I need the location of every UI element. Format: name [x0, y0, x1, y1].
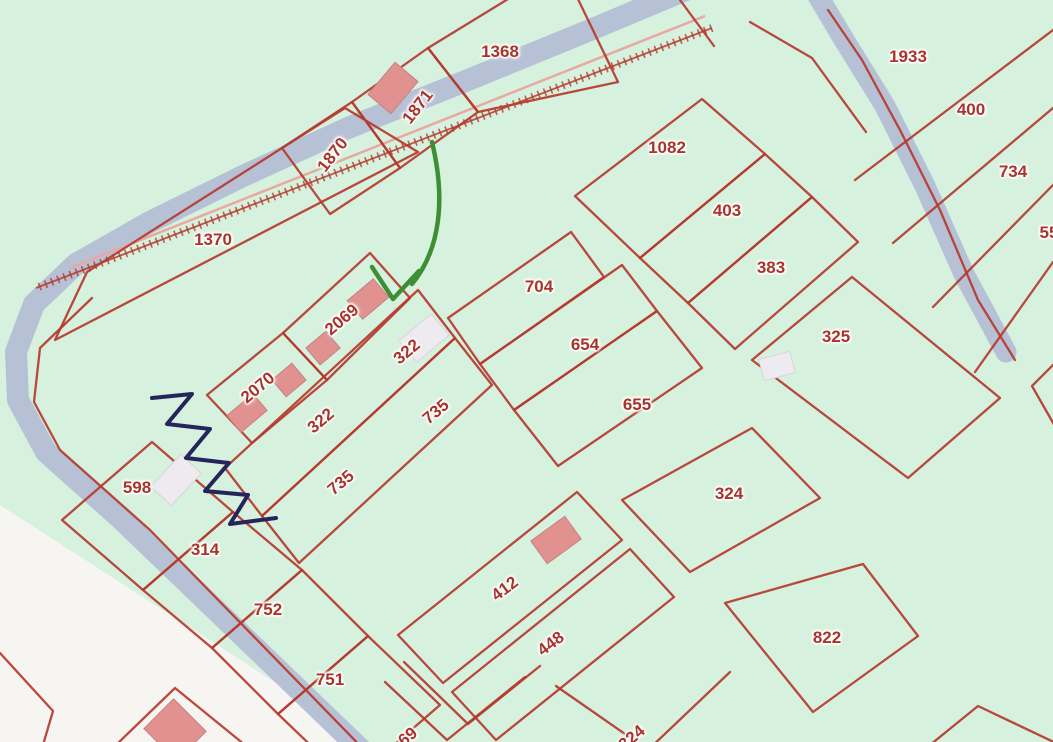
parcel-label-1933[interactable]: 1933: [889, 47, 927, 67]
building: [272, 363, 306, 397]
parcel-label-324[interactable]: 324: [715, 484, 743, 504]
parcel-boundary-403[interactable]: [640, 154, 812, 303]
parcel-boundary-655[interactable]: [514, 311, 702, 466]
parcel-label-1082[interactable]: 1082: [648, 138, 686, 158]
parcel-label-383[interactable]: 383: [757, 258, 785, 278]
parcel-label-704[interactable]: 704: [525, 277, 553, 297]
parcel-label-55[interactable]: 55: [1040, 223, 1053, 243]
parcel-boundary-325[interactable]: [752, 277, 1000, 478]
parcel-corner-right-edge: [1032, 362, 1053, 428]
parcel-label-822[interactable]: 822: [813, 628, 841, 648]
building: [759, 351, 796, 381]
map-svg: [0, 0, 1053, 742]
parcel-label-314[interactable]: 314: [191, 540, 219, 560]
parcel-label-403[interactable]: 403: [713, 201, 741, 221]
parcel-label-598[interactable]: 598: [123, 478, 151, 498]
building: [151, 454, 201, 505]
parcel-label-400[interactable]: 400: [957, 100, 985, 120]
cadastral-map[interactable]: 1368187118701370193340073455108240338370…: [0, 0, 1053, 742]
green-arrow-annotation: [412, 142, 439, 284]
parcel-boundary-654[interactable]: [480, 265, 657, 410]
parcel-label-734[interactable]: 734: [999, 162, 1027, 182]
parcel-label-655[interactable]: 655: [623, 395, 651, 415]
parcel-label-325[interactable]: 325: [822, 327, 850, 347]
parcel-corner-bottom-right: [930, 706, 1053, 742]
parcel-label-752[interactable]: 752: [254, 600, 282, 620]
parcel-label-751[interactable]: 751: [316, 670, 344, 690]
parcel-label-1368[interactable]: 1368: [481, 42, 519, 62]
parcel-label-1370[interactable]: 1370: [194, 230, 232, 250]
parcel-label-654[interactable]: 654: [571, 335, 599, 355]
